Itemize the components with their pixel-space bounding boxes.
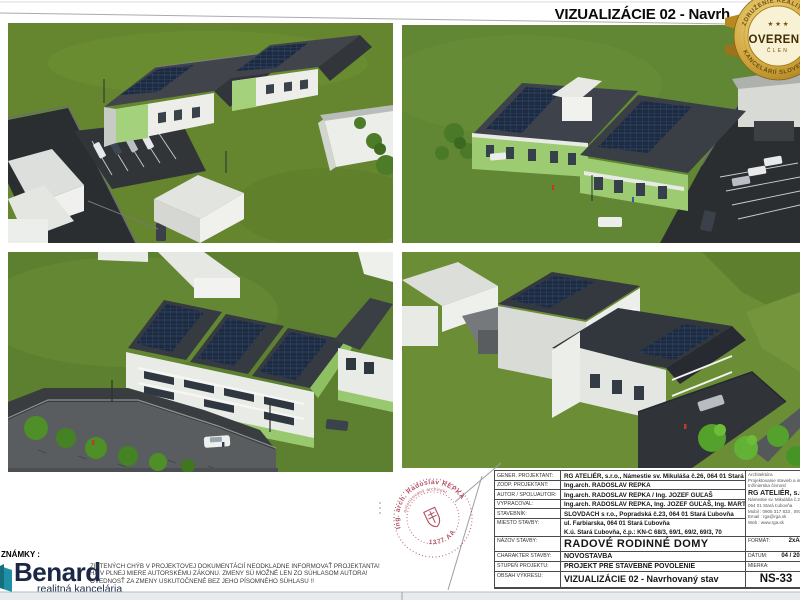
project-name: RADOVÉ RODINNÉ DOMY xyxy=(561,537,746,552)
row-label: OBSAH VÝKRESU: xyxy=(495,572,561,588)
firm-name: RG ATELIÉR, s.r.o. xyxy=(748,491,800,497)
row-label: CHARAKTER STAVBY: xyxy=(495,552,561,562)
date-value: 04 / 202 xyxy=(781,553,800,559)
render-bottom-right-aerial-view xyxy=(402,252,800,468)
render-top-left-aerial-view xyxy=(8,23,393,243)
drawing-number: NS-33 xyxy=(746,572,800,588)
row-value: ul. Farbiarska, 064 01 Stará Ľubovňa K.ú… xyxy=(561,519,746,537)
stamp-name-arc: Ing. arch. Radoslav REPKA xyxy=(383,468,466,531)
building-character: NOVOSTAVBA xyxy=(561,552,746,562)
row-value: SLOVDACH s r.o., Popradská č.23, 064 01 … xyxy=(561,509,746,519)
stamp-number: 1377 AA xyxy=(426,527,459,550)
svg-text:Ing. arch. Radoslav REPKA: Ing. arch. Radoslav REPKA xyxy=(383,468,466,531)
project-stage: PROJEKT PRE STAVEBNÉ POVOLENIE xyxy=(561,562,746,572)
row-value: RG ATELIÉR, s.r.o., Námestie sv. Mikuláš… xyxy=(561,471,746,481)
format-label: FORMÁT: xyxy=(748,538,770,544)
row-label: MIESTO STAVBY: xyxy=(495,519,561,537)
row-label: STUPEŇ PROJEKTU: xyxy=(495,562,561,572)
disclaimer-text: ZISTENÝCH CHÝB V PROJEKTOVEJ DOKUMENTÁCI… xyxy=(90,563,420,585)
date-label: DÁTUM: xyxy=(748,553,767,559)
row-value: Ing.arch. RADOSLAV REPKA, Ing. JOZEF GUĽ… xyxy=(561,500,746,510)
row-label: ZODP. PROJEKTANT: xyxy=(495,481,561,491)
firm-service: Inžinierska činnosť xyxy=(748,483,800,489)
person xyxy=(684,424,686,429)
drawing-content: VIZUALIZÁCIE 02 - Navrhovaný stav xyxy=(561,572,746,588)
svg-text:1377 AA: 1377 AA xyxy=(426,527,459,550)
date-cell: DÁTUM: 04 / 202 xyxy=(746,552,800,562)
row-value: Ing.arch. RADOSLAV REPKA xyxy=(561,481,746,491)
title-block-table: GENER. PROJEKTANT: RG ATELIÉR, s.r.o., N… xyxy=(494,470,800,589)
badge-center-label: OVERENÝ xyxy=(748,33,800,46)
slovak-coat-of-arms-icon xyxy=(424,507,443,529)
site-address-line: ul. Farbiarska, 064 01 Stará Ľubovňa xyxy=(561,519,745,528)
scale-label: MIERKA: xyxy=(748,563,769,569)
row-label: VYPRACOVAL: xyxy=(495,500,561,510)
row-label: NÁZOV STAVBY: xyxy=(495,537,561,552)
architect-stamp: Ing. arch. Radoslav REPKA autorizovaný a… xyxy=(383,468,483,568)
format-value: 2xA4 xyxy=(789,538,800,544)
benard-book-icon xyxy=(0,562,14,594)
render-bottom-left-street-view xyxy=(8,252,393,472)
row-label: STAVEBNÍK: xyxy=(495,509,561,519)
format-cell: FORMÁT: 2xA4 xyxy=(746,537,800,552)
site-parcels-line: K.ú. Stará Ľubovňa, č.p.: KN-C 68/3, 69/… xyxy=(561,528,745,537)
row-label: GENER. PROJEKTANT: xyxy=(495,471,561,481)
page-title: VIZUALIZÁCIE 02 - Navrh xyxy=(515,6,730,23)
benard-underline xyxy=(36,594,255,595)
row-value: Ing.arch. RADOSLAV REPKA / Ing. JOZEF GU… xyxy=(561,490,746,500)
badge-sub-label: ČLEN xyxy=(767,47,789,54)
disclaimer-line: OVEDNOSŤ ZA ZMENY USKUTOČNENÉ BEZ JEHO P… xyxy=(90,578,420,585)
firm-web: Web : www.rga.sk xyxy=(748,520,800,526)
scale-cell: MIERKA: xyxy=(746,562,800,572)
disclaimer-line: HA V PLNEJ MIERE AUTORSKÉMU ZÁKONU. ZMEN… xyxy=(90,570,420,577)
firm-info-panel: Architektúra Projektovanie stavieb a int… xyxy=(746,471,800,537)
fold-marks xyxy=(379,502,381,514)
row-label: AUTOR / SPOLUAUTOR: xyxy=(495,490,561,500)
firm-address: 064 01 Stará Ľubovňa xyxy=(748,503,800,509)
scanned-drawing-sheet: VIZUALIZÁCIE 02 - Navrh ZDRUŽENIE REALIT… xyxy=(0,0,800,600)
badge-stars: ★ ★ ★ xyxy=(767,20,788,28)
overeny-seal-badge: ZDRUŽENIE REALITNÝCH KANCELÁRIÍ SLOVENSK… xyxy=(723,0,800,84)
